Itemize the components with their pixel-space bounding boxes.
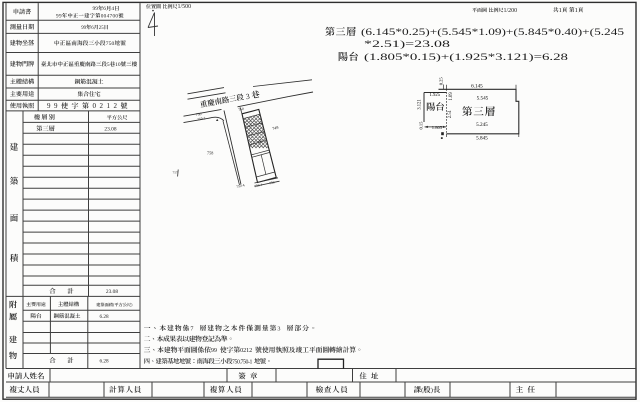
svg-text:750.750-1: 750.750-1 [232, 359, 252, 365]
svg-text:7: 7 [190, 326, 194, 333]
svg-text:5.845: 5.845 [476, 136, 488, 142]
svg-text:0212: 0212 [93, 102, 121, 110]
svg-text:(6.145*0.25)+(5.545*1.09)+(5.8: (6.145*0.25)+(5.545*1.09)+(5.845*0.40)+(… [361, 27, 624, 38]
svg-text:4: 4 [111, 6, 114, 12]
svg-text:99: 99 [47, 102, 61, 110]
svg-text:1: 1 [575, 7, 578, 14]
svg-text:004700: 004700 [101, 13, 119, 19]
svg-text:): ) [131, 303, 133, 307]
svg-text:0.25: 0.25 [439, 77, 444, 86]
svg-text:750-4: 750-4 [236, 183, 245, 189]
svg-text:99: 99 [81, 26, 86, 31]
svg-text:0212: 0212 [240, 347, 252, 354]
svg-text:99: 99 [93, 6, 99, 12]
svg-text:750: 750 [257, 139, 263, 144]
svg-text:99: 99 [211, 347, 217, 354]
svg-text:(1.805*0.15)+(1.925*3.121)=6.2: (1.805*0.15)+(1.925*3.121)=6.28 [364, 52, 568, 63]
svg-text:23.08: 23.08 [104, 127, 116, 133]
svg-text:(: ( [113, 303, 115, 307]
svg-text:6: 6 [91, 26, 94, 31]
svg-text:757: 757 [173, 171, 178, 175]
svg-text:750: 750 [106, 41, 115, 47]
svg-text:3: 3 [277, 326, 281, 333]
svg-text:1.925: 1.925 [430, 93, 441, 98]
svg-text:5: 5 [107, 62, 110, 68]
svg-text:10: 10 [115, 62, 121, 68]
svg-text:6: 6 [103, 6, 106, 12]
svg-text:(: ( [421, 387, 423, 394]
svg-text:1/200: 1/200 [504, 8, 518, 14]
svg-text:6.145: 6.145 [471, 84, 483, 90]
svg-text:1.805: 1.805 [432, 125, 443, 130]
svg-text:1: 1 [559, 7, 562, 14]
svg-text:750-2: 750-2 [197, 116, 206, 121]
svg-text:758: 758 [207, 151, 213, 156]
svg-text:0.15: 0.15 [418, 121, 423, 130]
svg-text:): ) [431, 387, 433, 394]
svg-text:*2.51)=23.08: *2.51)=23.08 [364, 39, 451, 50]
svg-text:749: 749 [272, 125, 279, 131]
svg-text:6.28: 6.28 [100, 314, 109, 320]
svg-text:3: 3 [245, 92, 251, 102]
svg-text:3.121: 3.121 [418, 99, 423, 110]
svg-text:23.08: 23.08 [106, 289, 118, 295]
svg-text:2.51: 2.51 [448, 109, 453, 118]
svg-text:750: 750 [269, 180, 275, 185]
svg-text:5.545: 5.545 [477, 96, 489, 102]
svg-text:25: 25 [99, 26, 104, 31]
svg-text:99: 99 [56, 13, 62, 19]
svg-text:5.245: 5.245 [476, 122, 488, 128]
svg-text:1.09: 1.09 [449, 92, 454, 101]
svg-text:1/500: 1/500 [178, 4, 192, 10]
svg-text:6.28: 6.28 [100, 359, 109, 365]
svg-text:750-1: 750-1 [254, 183, 263, 189]
